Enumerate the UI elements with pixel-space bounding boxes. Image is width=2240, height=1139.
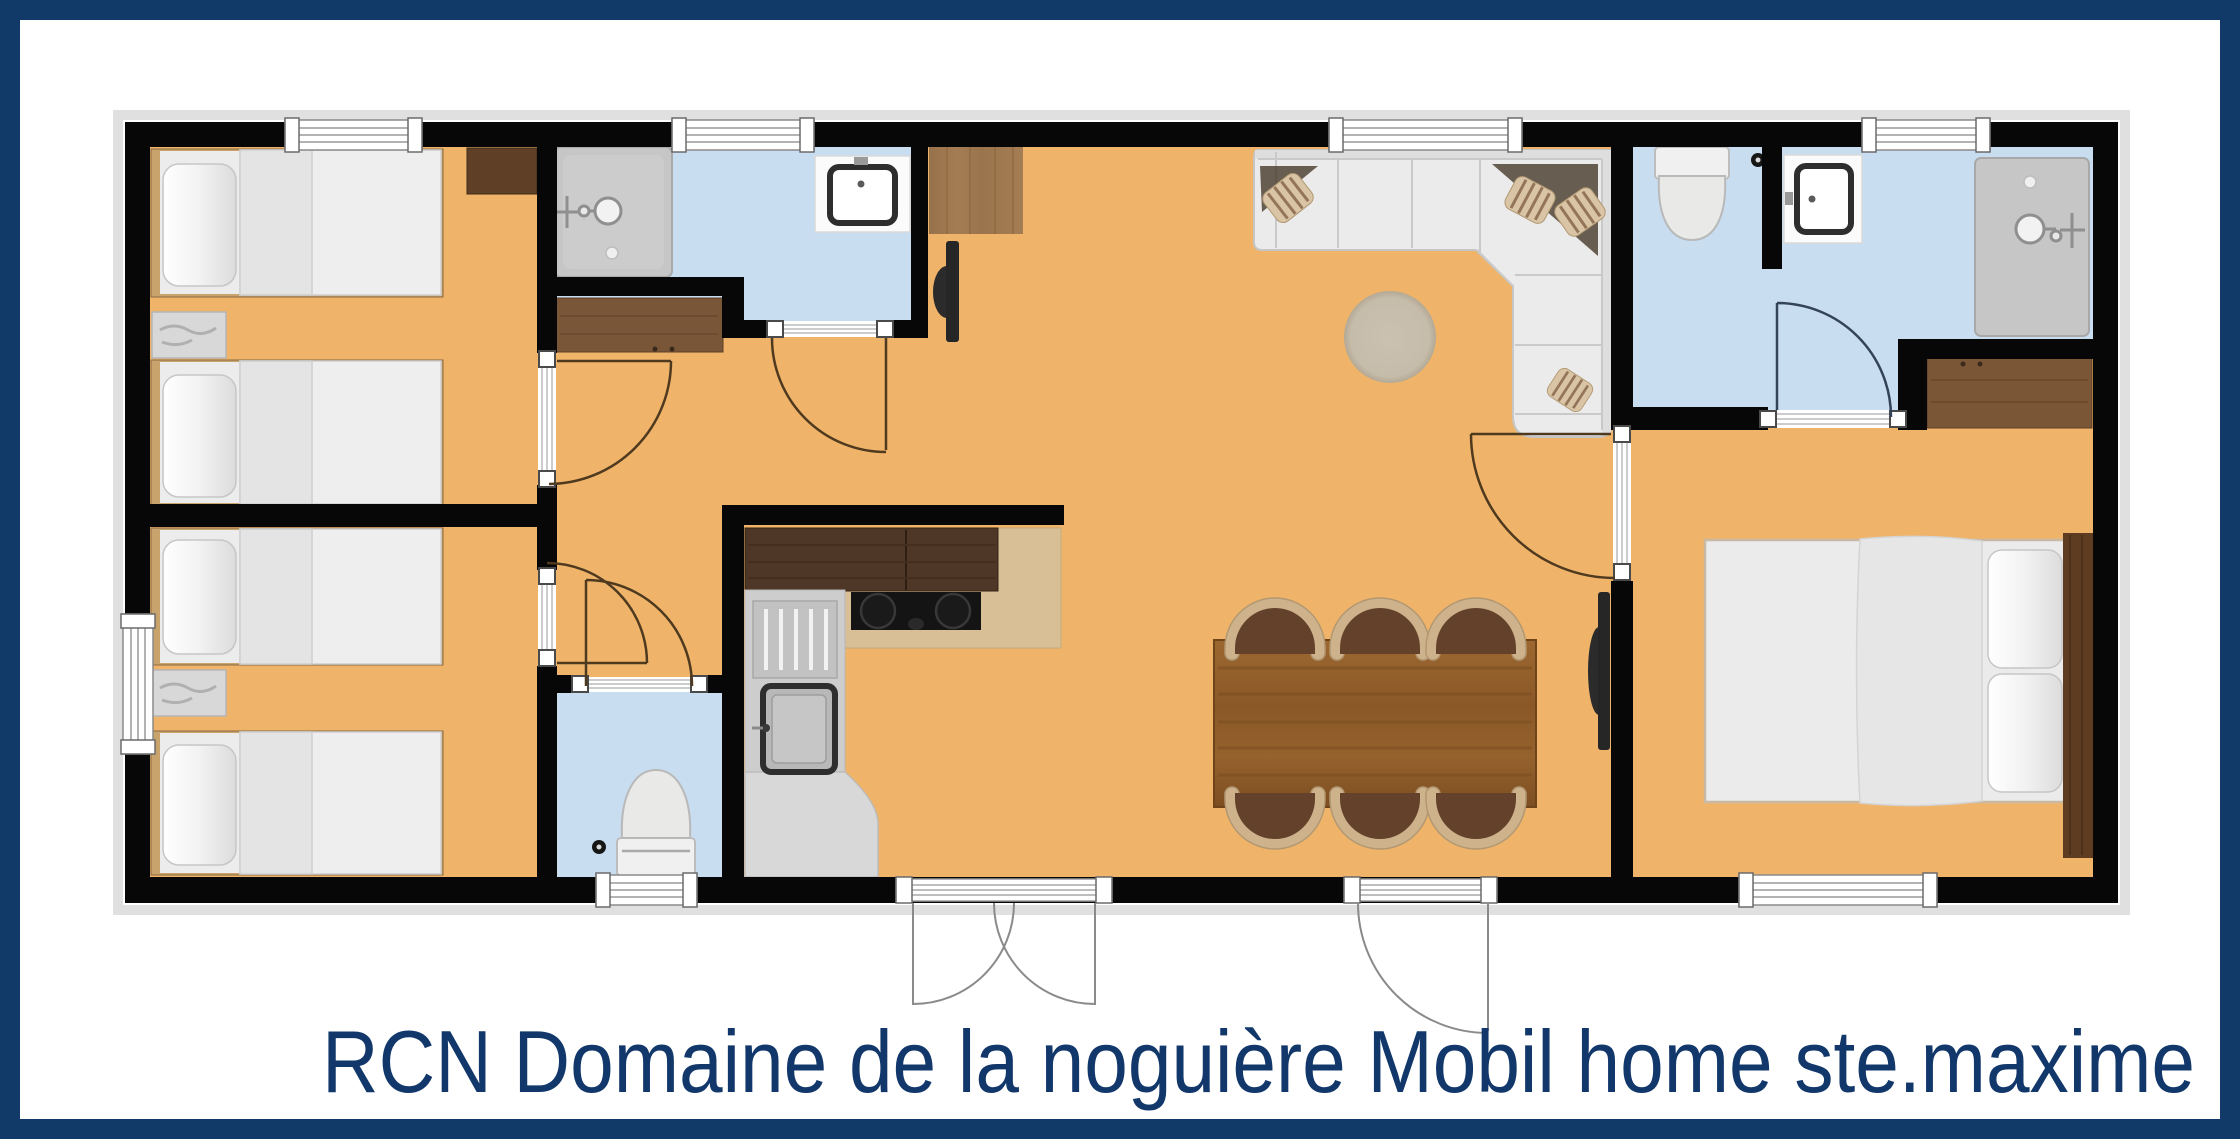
svg-text:RCN Domaine de la noguière Mob: RCN Domaine de la noguière Mobil home st… xyxy=(322,1012,2195,1111)
